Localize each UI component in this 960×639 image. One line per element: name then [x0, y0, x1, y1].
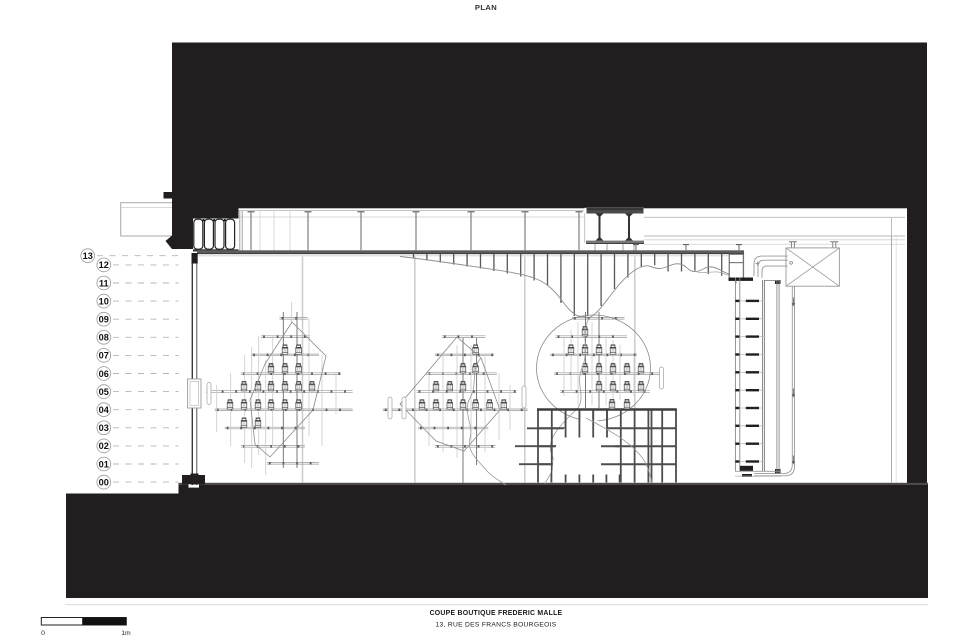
- svg-text:1m: 1m: [121, 630, 131, 637]
- svg-text:02: 02: [99, 441, 109, 451]
- svg-text:11: 11: [99, 278, 109, 288]
- svg-text:06: 06: [99, 369, 109, 379]
- svg-text:0: 0: [41, 630, 45, 637]
- svg-text:07: 07: [99, 351, 109, 361]
- svg-text:13, RUE DES FRANCS BOURGEOIS: 13, RUE DES FRANCS BOURGEOIS: [436, 621, 557, 628]
- svg-text:05: 05: [99, 387, 109, 397]
- svg-text:12: 12: [99, 260, 109, 270]
- svg-text:COUPE BOUTIQUE FREDERIC MALLE: COUPE BOUTIQUE FREDERIC MALLE: [430, 610, 563, 617]
- svg-text:10: 10: [99, 296, 109, 306]
- svg-text:09: 09: [99, 315, 109, 325]
- svg-text:PLAN: PLAN: [475, 3, 497, 12]
- svg-text:13: 13: [83, 251, 93, 261]
- svg-text:03: 03: [99, 423, 109, 433]
- svg-text:01: 01: [99, 459, 109, 469]
- svg-text:08: 08: [99, 333, 109, 343]
- svg-text:00: 00: [99, 477, 109, 487]
- svg-text:04: 04: [99, 405, 110, 415]
